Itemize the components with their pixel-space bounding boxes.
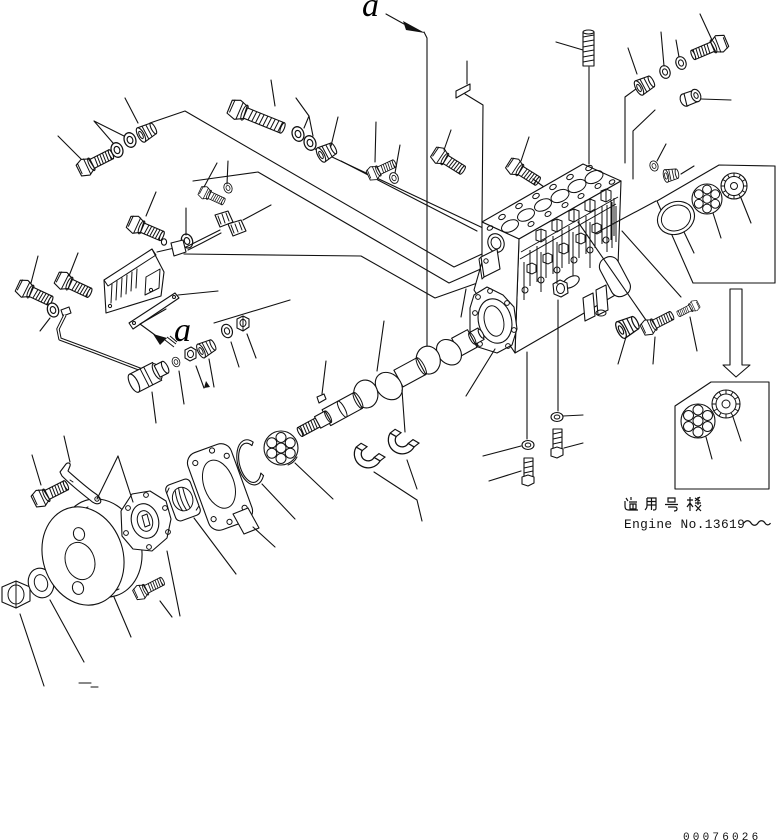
svg-text:00076026: 00076026 [683,832,761,840]
svg-text:a: a [174,312,191,349]
svg-text:a: a [362,0,379,24]
svg-text:Engine No.13619: Engine No.13619 [624,517,745,532]
